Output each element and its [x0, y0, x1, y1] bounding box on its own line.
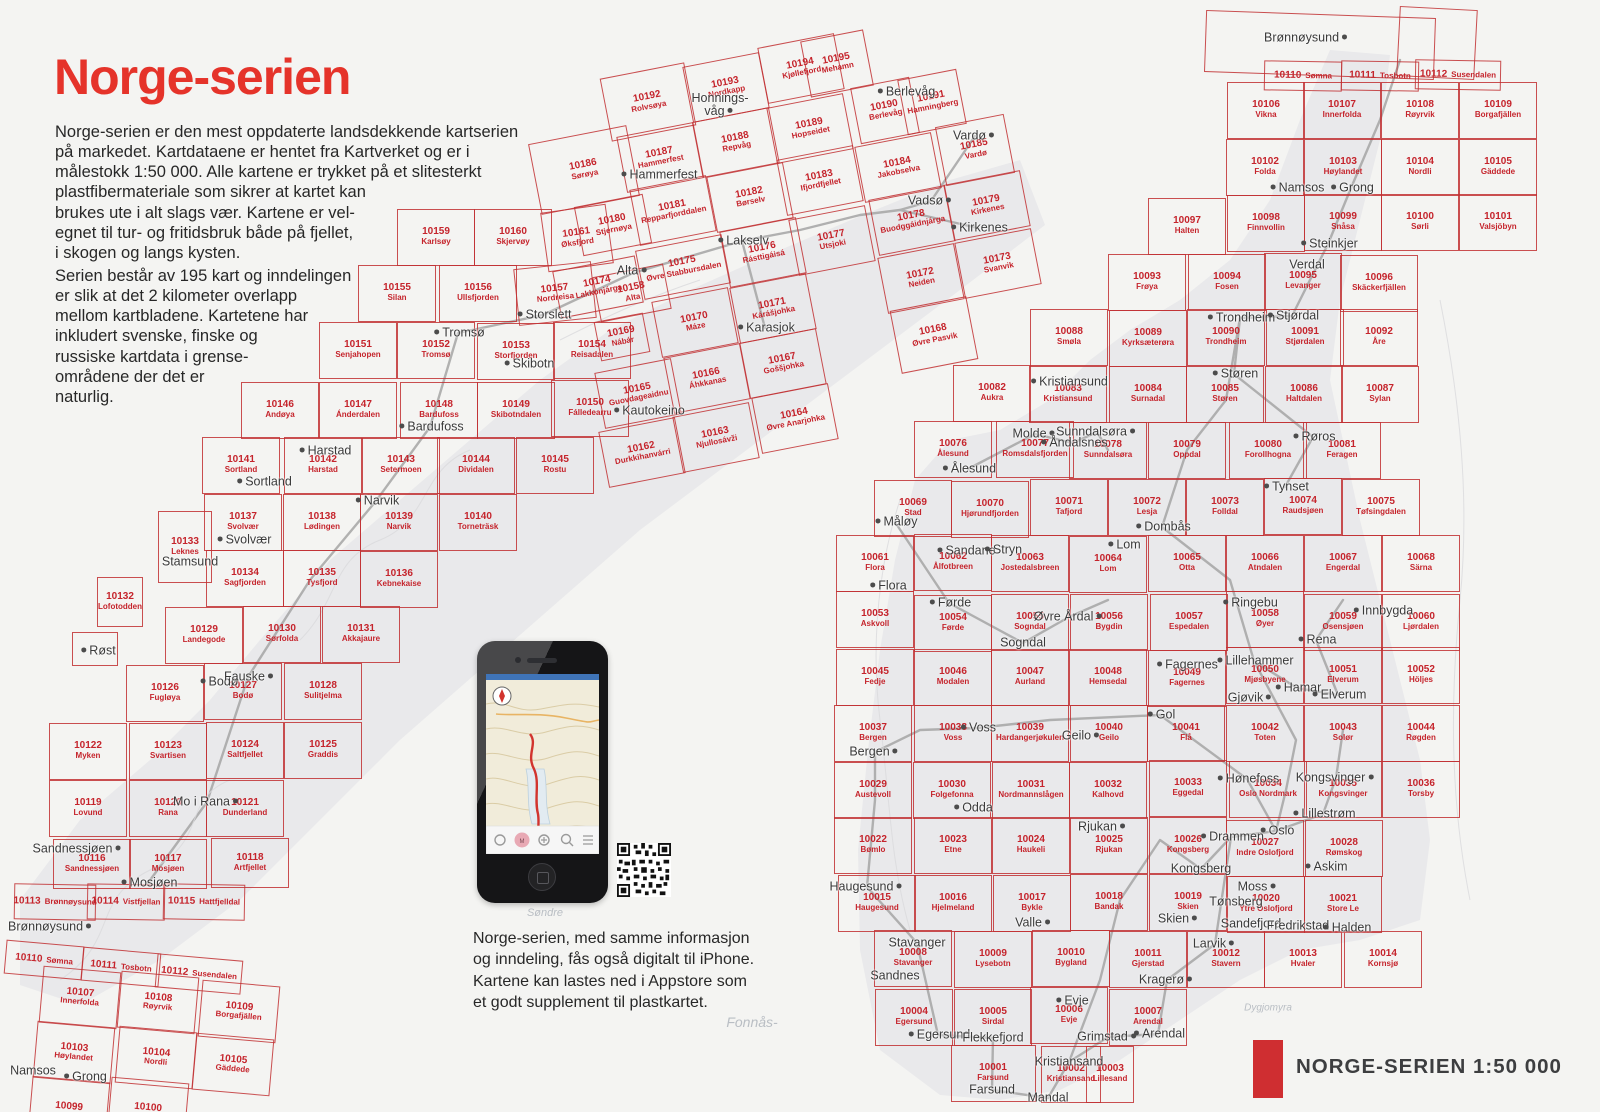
town-name: Innbygda	[1362, 603, 1413, 617]
intro-paragraph-1: Norge-serien er den mest oppdaterte land…	[55, 122, 518, 263]
town-name: Geilo	[1062, 728, 1091, 742]
town-dot	[1130, 429, 1135, 434]
town-dot	[1223, 600, 1228, 605]
status-bar	[486, 674, 599, 680]
town-dot	[909, 1032, 914, 1037]
town-name: Lakselv	[726, 233, 768, 247]
town-name: Grimstad	[1077, 1029, 1128, 1043]
town-dot	[1368, 775, 1373, 780]
town-dot	[937, 548, 942, 553]
town-label: Harstad	[297, 444, 352, 457]
town-dot	[218, 537, 223, 542]
town-name: Mandal	[1028, 1090, 1069, 1104]
town-label: Berlevåg	[875, 85, 935, 98]
town-name: Odda	[962, 800, 993, 814]
town-label: Bardufoss	[396, 420, 463, 433]
town-name: Lom	[1116, 537, 1140, 551]
town-dot	[875, 519, 880, 524]
town-name: Harstad	[308, 443, 352, 457]
town-label: Grimstad	[1077, 1030, 1139, 1043]
town-label: Hønefoss	[1215, 772, 1280, 785]
town-dot	[1266, 695, 1271, 700]
town-label: Kirkenes	[948, 221, 1008, 234]
town-label: Åndalsnes	[1038, 436, 1107, 449]
town-dot	[1045, 920, 1050, 925]
town-name: Verdal	[1289, 257, 1324, 271]
town-name: Kristiansand	[1035, 1054, 1104, 1068]
town-label: Flora	[867, 579, 906, 592]
town-name: Steinkjer	[1309, 236, 1358, 250]
town-dot	[1031, 379, 1036, 384]
town-dot	[1056, 998, 1061, 1003]
town-dot	[1293, 811, 1298, 816]
town-label: Stryn	[982, 543, 1022, 556]
town-dot	[1229, 941, 1234, 946]
town-label: Stavanger	[889, 936, 946, 949]
town-label: Kristiansund	[1028, 375, 1108, 388]
town-name: Halden	[1332, 920, 1372, 934]
town-name: Evje	[1064, 993, 1088, 1007]
town-label: Kongsberg	[1171, 862, 1231, 875]
town-dot	[943, 466, 948, 471]
town-label: Skibotn	[502, 357, 555, 370]
iphone-promo-text: Norge-serien, med samme informasjon og i…	[473, 928, 754, 1013]
brand-title: NORGE-SERIEN 1:50 000	[1296, 1055, 1562, 1079]
town-label: Vadsø	[908, 194, 954, 207]
town-name: Berlevåg	[886, 84, 935, 98]
town-label: Halden	[1321, 921, 1372, 934]
town-dot	[300, 448, 305, 453]
town-label: Mo i Rana	[173, 795, 241, 808]
town-dot	[1120, 824, 1125, 829]
town-label: Drammen	[1198, 830, 1264, 843]
town-label: Kongsvinger	[1296, 771, 1377, 784]
town-name: Honnings- våg	[692, 91, 749, 118]
town-dot	[718, 238, 723, 243]
town-name: Karasjok	[746, 320, 795, 334]
town-label: Namsos	[10, 1064, 56, 1077]
town-dot	[870, 583, 875, 588]
town-name: Sandnessjøen	[33, 841, 113, 855]
phone-screen: M	[486, 674, 599, 854]
town-name: Oslo	[1269, 823, 1295, 837]
town-name: Røst	[89, 643, 115, 657]
town-label: Grong	[1328, 181, 1374, 194]
town-label: Egersund	[906, 1028, 971, 1041]
town-name: Kongsberg	[1171, 861, 1231, 875]
town-dot	[518, 312, 523, 317]
town-name: Sortland	[245, 474, 292, 488]
town-name: Ringebu	[1231, 595, 1278, 609]
town-dot	[81, 648, 86, 653]
town-dot	[1148, 712, 1153, 717]
town-label: Brønnøysund	[1264, 31, 1350, 44]
town-name: Åndalsnes	[1049, 435, 1107, 449]
town-name: Lillehammer	[1225, 653, 1293, 667]
town-name: Tromsø	[442, 325, 485, 339]
town-name: Narvik	[364, 493, 399, 507]
phone-home-button	[528, 863, 556, 891]
town-label: Stjørdal	[1265, 309, 1319, 322]
town-label: Fagernes	[1154, 658, 1218, 671]
town-dot	[878, 89, 883, 94]
town-label: Larvik	[1193, 937, 1237, 950]
town-name: Grong	[72, 1069, 107, 1083]
town-name: Stjørdal	[1276, 308, 1319, 322]
town-name: Bardufoss	[407, 419, 463, 433]
phone-camera-dot	[515, 657, 521, 663]
town-dot	[399, 424, 404, 429]
town-name: Rjukan	[1078, 819, 1117, 833]
town-dot	[1217, 658, 1222, 663]
town-name: Tynset	[1272, 479, 1309, 493]
town-dot	[1157, 662, 1162, 667]
town-label: Måløy	[872, 515, 917, 528]
town-dot	[1187, 977, 1192, 982]
town-name: Kautokeino	[622, 403, 685, 417]
town-name: Kongsvinger	[1296, 770, 1366, 784]
iphone-mockup: M	[477, 641, 608, 903]
town-label: Mosjøen	[119, 876, 178, 889]
town-label: Førde	[927, 596, 971, 609]
town-label: Røros	[1290, 430, 1335, 443]
town-label: Evje	[1053, 994, 1088, 1007]
town-dot	[1271, 185, 1276, 190]
town-name: Voss	[969, 720, 996, 734]
town-dot	[1261, 828, 1266, 833]
town-dot	[233, 799, 238, 804]
town-dot	[1208, 315, 1213, 320]
town-name: Grong	[1339, 180, 1374, 194]
town-label: Gol	[1145, 708, 1175, 721]
town-name: Måløy	[883, 514, 917, 528]
town-label: Rena	[1296, 633, 1337, 646]
town-dot	[505, 361, 510, 366]
town-name: Askim	[1313, 859, 1347, 873]
town-name: Mo i Rana	[173, 794, 230, 808]
town-name: Flekkefjord	[962, 1030, 1023, 1044]
town-label: Bergen	[849, 745, 900, 758]
town-label: Gjøvik	[1228, 691, 1274, 704]
town-name: Fauske	[224, 669, 265, 683]
town-dot	[989, 133, 994, 138]
town-label: Narvik	[353, 494, 399, 507]
town-name: Flora	[878, 578, 906, 592]
town-name: Støren	[1221, 366, 1259, 380]
town-name: Dombås	[1144, 519, 1191, 533]
town-label: Svolvær	[215, 533, 272, 546]
town-name: Gol	[1156, 707, 1175, 721]
town-name: Vardø	[953, 128, 986, 142]
town-dot	[1276, 685, 1281, 690]
town-name: Sogndal	[1000, 635, 1046, 649]
town-name: Alta	[617, 263, 639, 277]
town-label: Lakselv	[715, 234, 768, 247]
town-label: Ringebu	[1220, 596, 1278, 609]
page-title: Norge-serien	[54, 48, 350, 106]
town-name: Stavanger	[889, 935, 946, 949]
town-label: Askim	[1302, 860, 1347, 873]
town-dot	[201, 679, 206, 684]
town-dot	[946, 198, 951, 203]
town-label: Kautokeino	[611, 404, 685, 417]
terrain-label: Fonnås-	[726, 1014, 777, 1030]
town-dot	[961, 725, 966, 730]
phone-speaker	[527, 658, 557, 663]
town-label: Tønsberg	[1209, 895, 1263, 908]
town-name: Gjøvik	[1228, 690, 1263, 704]
town-label: Rjukan	[1078, 820, 1128, 833]
town-dot	[1305, 864, 1310, 869]
town-name: Ålesund	[951, 461, 996, 475]
town-dot	[985, 547, 990, 552]
town-dot	[86, 924, 91, 929]
phone-map-app: M	[486, 674, 599, 854]
town-name: Øvre Årdal	[1034, 609, 1094, 623]
town-label: Vardø	[953, 129, 997, 142]
town-label: Hammerfest	[618, 168, 697, 181]
brochure-page: Norge-serien Norge-serien er den mest op…	[0, 0, 1600, 1112]
brand-red-block	[1253, 1040, 1283, 1098]
town-dot	[122, 880, 127, 885]
town-name: Mosjøen	[130, 875, 178, 889]
town-label: Fauske	[224, 670, 276, 683]
town-label: Voss	[958, 721, 996, 734]
town-label: Tromsø	[431, 326, 485, 339]
svg-text:M: M	[520, 839, 525, 845]
town-dot	[1134, 1031, 1139, 1036]
town-name: Svolvær	[226, 532, 272, 546]
town-label: Kristiansand	[1035, 1055, 1104, 1068]
town-name: Valle	[1015, 915, 1042, 929]
town-name: Skibotn	[513, 356, 555, 370]
town-name: Kristiansund	[1039, 374, 1108, 388]
town-dot	[1192, 916, 1197, 921]
town-dot	[237, 479, 242, 484]
town-dot	[1218, 776, 1223, 781]
town-label: Valle	[1015, 916, 1053, 929]
town-label: Sogndal	[1000, 636, 1046, 649]
town-name: Namsos	[1279, 180, 1325, 194]
town-dot	[641, 268, 646, 273]
town-dot	[1201, 834, 1206, 839]
terrain-label: Søndre	[527, 907, 563, 919]
town-name: Hønefoss	[1226, 771, 1280, 785]
town-label: Oslo	[1258, 824, 1295, 837]
town-label: Støren	[1210, 367, 1259, 380]
town-label: Storslett	[515, 308, 572, 321]
town-name: Drammen	[1209, 829, 1264, 843]
town-label: Sandnessjøen	[33, 842, 124, 855]
intro-paragraph-2: Serien består av 195 kart og inndelingen…	[55, 266, 351, 407]
town-name: Bergen	[849, 744, 889, 758]
town-dot	[1213, 371, 1218, 376]
town-label: Honnings- våg	[692, 92, 749, 118]
town-dot	[1270, 884, 1275, 889]
town-label: Grong	[61, 1070, 107, 1083]
town-dot	[1264, 484, 1269, 489]
town-label: Sandnes	[870, 969, 919, 982]
town-dot	[268, 674, 273, 679]
town-name: Elverum	[1321, 687, 1367, 701]
town-label: Karasjok	[735, 321, 795, 334]
town-dot	[621, 172, 626, 177]
town-name: Haugesund	[830, 879, 894, 893]
town-name: Arendal	[1142, 1026, 1185, 1040]
town-dot	[951, 225, 956, 230]
town-label: Lillehammer	[1214, 654, 1293, 667]
town-dot	[1268, 313, 1273, 318]
town-name: Lillestrøm	[1301, 806, 1355, 820]
town-dot	[1108, 542, 1113, 547]
town-label: Farsund	[969, 1083, 1015, 1096]
town-name: Namsos	[10, 1063, 56, 1077]
town-dot	[1299, 637, 1304, 642]
town-dot	[1136, 524, 1141, 529]
town-label: Alta	[617, 264, 650, 277]
town-name: Rena	[1307, 632, 1337, 646]
town-dot	[1342, 35, 1347, 40]
town-dot	[1324, 925, 1329, 930]
town-label: Stamsund	[162, 555, 218, 568]
town-name: Tønsberg	[1209, 894, 1263, 908]
town-name: Farsund	[969, 1082, 1015, 1096]
town-label: Ålesund	[940, 462, 996, 475]
town-dot	[738, 325, 743, 330]
town-dot	[115, 846, 120, 851]
town-label: Tynset	[1261, 480, 1309, 493]
town-name: Brønnøysund	[8, 919, 83, 933]
town-label: Lillestrøm	[1290, 807, 1355, 820]
qr-code	[617, 843, 671, 897]
town-name: Stryn	[993, 542, 1022, 556]
town-label: Innbygda	[1351, 604, 1413, 617]
town-dot	[1041, 440, 1046, 445]
town-label: Lom	[1105, 538, 1140, 551]
town-dot	[1301, 241, 1306, 246]
town-dot	[1094, 733, 1099, 738]
town-name: Røros	[1301, 429, 1335, 443]
town-label: Arendal	[1131, 1027, 1185, 1040]
town-name: Larvik	[1193, 936, 1226, 950]
town-label: Skien	[1158, 912, 1200, 925]
town-name: Førde	[938, 595, 971, 609]
town-dot	[954, 805, 959, 810]
town-name: Storslett	[526, 307, 572, 321]
town-label: Steinkjer	[1298, 237, 1358, 250]
town-label: Sortland	[234, 475, 292, 488]
town-name: Sandnes	[870, 968, 919, 982]
town-dot	[1354, 608, 1359, 613]
town-label: Haugesund	[830, 880, 905, 893]
terrain-label: Dygjomyra	[1244, 1003, 1292, 1014]
town-name: Kirkenes	[959, 220, 1008, 234]
town-dot	[1293, 434, 1298, 439]
town-dot	[896, 884, 901, 889]
town-label: Røst	[78, 644, 115, 657]
town-name: Stamsund	[162, 554, 218, 568]
town-label: Dombås	[1133, 520, 1191, 533]
town-name: Vadsø	[908, 193, 943, 207]
town-label: Verdal	[1289, 258, 1324, 271]
town-name: Fagernes	[1165, 657, 1218, 671]
town-label: Elverum	[1310, 688, 1367, 701]
town-name: Moss	[1238, 879, 1268, 893]
town-label: Mandal	[1028, 1091, 1069, 1104]
town-label: Øvre Årdal	[1034, 610, 1105, 623]
town-dot	[893, 749, 898, 754]
town-dot	[1096, 614, 1101, 619]
town-name: Brønnøysund	[1264, 30, 1339, 44]
town-dot	[356, 498, 361, 503]
town-label: Brønnøysund	[8, 920, 94, 933]
town-label: Namsos	[1268, 181, 1325, 194]
town-dot	[930, 600, 935, 605]
town-label: Moss	[1238, 880, 1279, 893]
town-label: Geilo	[1062, 729, 1102, 742]
town-dot	[728, 108, 733, 113]
town-label: Flekkefjord	[962, 1031, 1023, 1044]
town-dot	[614, 408, 619, 413]
town-dot	[1331, 185, 1336, 190]
town-name: Hammerfest	[629, 167, 697, 181]
town-dot	[434, 330, 439, 335]
town-label: Odda	[951, 801, 993, 814]
town-name: Skien	[1158, 911, 1189, 925]
town-dot	[1313, 692, 1318, 697]
town-label: Kragerø	[1139, 973, 1195, 986]
town-dot	[64, 1074, 69, 1079]
town-name: Kragerø	[1139, 972, 1184, 986]
